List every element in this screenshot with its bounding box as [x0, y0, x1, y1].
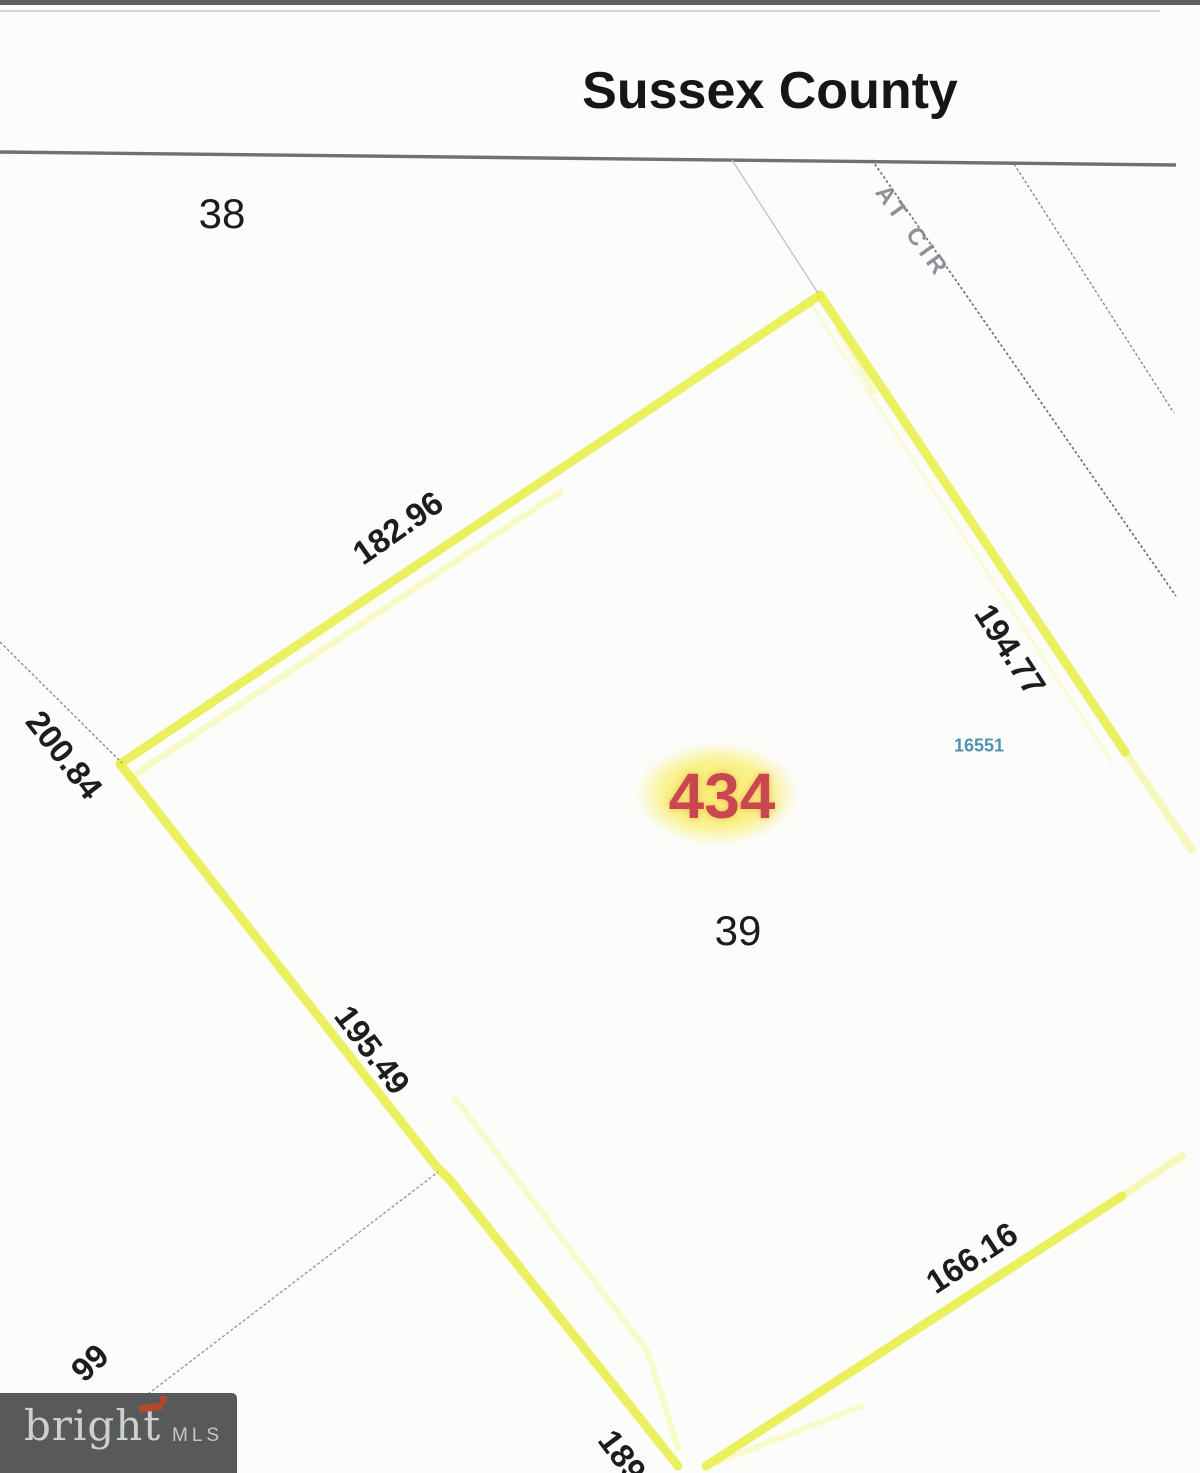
parcel-map-lines [0, 0, 1200, 1473]
plat-map-canvas: Sussex County 38 39 434 16551 AT CIR 182… [0, 0, 1200, 1473]
parcel-id-label: 434 [669, 759, 776, 833]
parcel-boundary-highlight [120, 295, 1192, 1466]
highlight-light-ne [812, 306, 1112, 762]
logo-accent-dot [160, 1396, 167, 1403]
house-number-label: 16551 [954, 736, 1004, 757]
highlight-light-sw [455, 1098, 678, 1448]
county-title: Sussex County [582, 61, 958, 121]
scan-top-edge [0, 0, 1200, 5]
survey-line-to-north-corner [732, 160, 818, 293]
highlight-edge-ne-fade [1125, 752, 1192, 850]
highlight-edge-ne [820, 295, 1125, 752]
lot-39-label: 39 [715, 907, 762, 955]
brightmls-logo: bright MLS [0, 1393, 237, 1473]
road-edge-line-far [1014, 164, 1174, 413]
logo-mls-label: MLS [172, 1425, 223, 1447]
north-boundary-rule [0, 152, 1176, 165]
lot-38-label: 38 [199, 190, 246, 238]
highlight-edge-sw [120, 764, 678, 1466]
highlight-edge-se [706, 1196, 1122, 1466]
highlight-edge-se-fade [1122, 1156, 1182, 1196]
neighbor-boundary-south [148, 1172, 438, 1394]
highlight-edge-nw [120, 295, 820, 764]
highlight-light-nw [130, 492, 560, 778]
